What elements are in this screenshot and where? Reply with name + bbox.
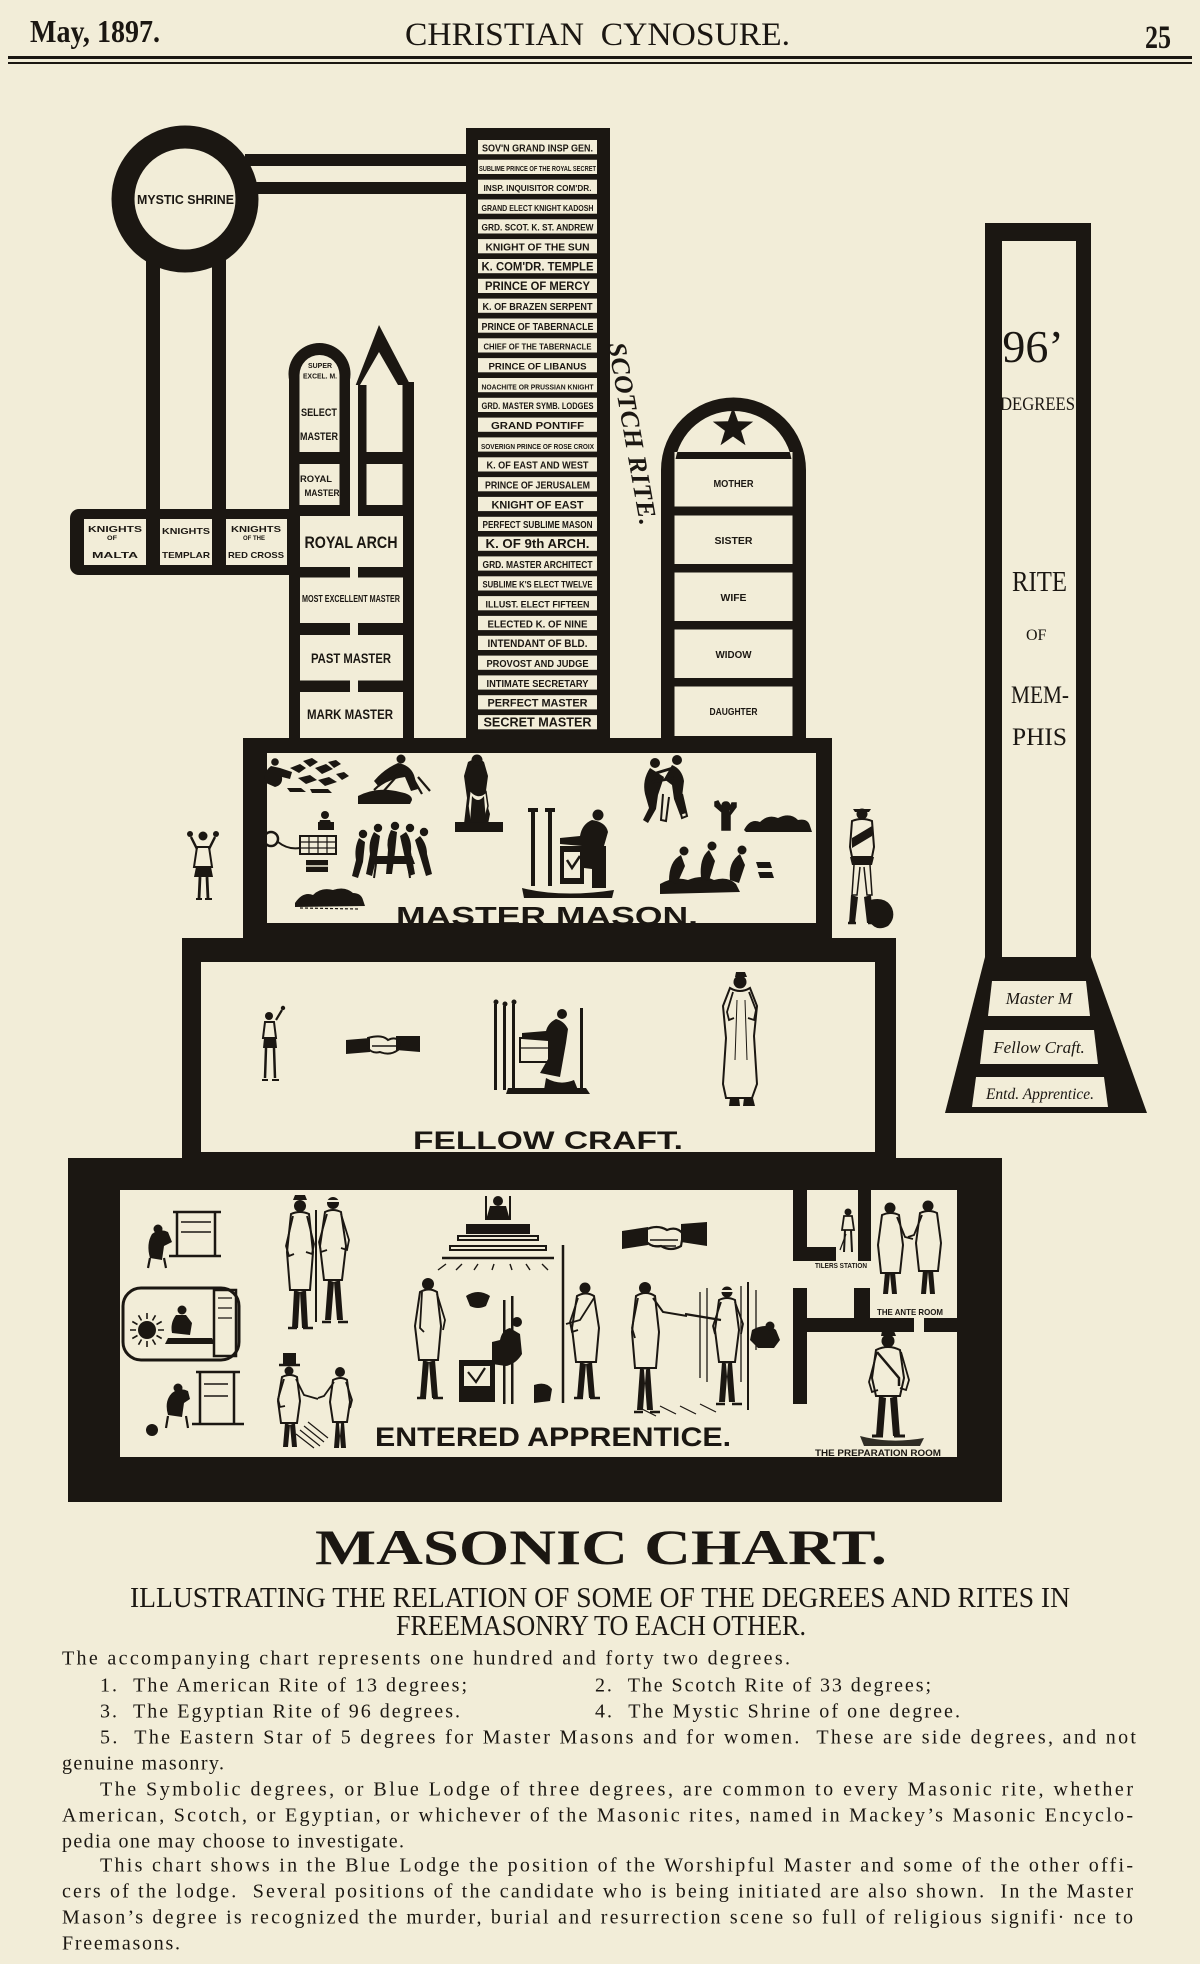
svg-text:This chart shows in the Blue L: This chart shows in the Blue Lodge the p…: [100, 1855, 1133, 1877]
svg-text:CHRISTIAN CYNOSURE.: CHRISTIAN CYNOSURE.: [405, 17, 790, 53]
svg-text:THE PREPARATION ROOM: THE PREPARATION ROOM: [815, 1448, 941, 1459]
svg-text:PRINCE OF JERUSALEM: PRINCE OF JERUSALEM: [485, 481, 590, 492]
svg-text:ROYAL ARCH: ROYAL ARCH: [305, 534, 398, 552]
svg-text:FREEMASONRY TO EACH OTHER.: FREEMASONRY TO EACH OTHER.: [396, 1611, 806, 1642]
svg-text:PAST MASTER: PAST MASTER: [311, 651, 391, 666]
svg-text:PERFECT MASTER: PERFECT MASTER: [488, 698, 588, 710]
svg-text:K. COM'DR. TEMPLE: K. COM'DR. TEMPLE: [482, 259, 594, 273]
svg-text:PRINCE OF MERCY: PRINCE OF MERCY: [485, 279, 590, 293]
svg-text:SECRET MASTER: SECRET MASTER: [484, 716, 592, 730]
svg-text:MASTER MASON.: MASTER MASON.: [396, 901, 698, 931]
svg-text:OF THE: OF THE: [243, 536, 265, 542]
svg-text:GRAND ELECT KNIGHT KADOSH: GRAND ELECT KNIGHT KADOSH: [482, 204, 594, 213]
svg-text:INSP. INQUISITOR COM'DR.: INSP. INQUISITOR COM'DR.: [484, 183, 592, 193]
svg-text:KNIGHT OF EAST: KNIGHT OF EAST: [492, 499, 584, 511]
svg-text:SOVERIGN PRINCE OF ROSE CROIX: SOVERIGN PRINCE OF ROSE CROIX: [481, 444, 594, 451]
svg-text:PRINCE OF TABERNACLE: PRINCE OF TABERNACLE: [482, 322, 594, 333]
svg-text:ILLUST. ELECT FIFTEEN: ILLUST. ELECT FIFTEEN: [486, 600, 590, 611]
svg-text:American, Scotch, or Egyptian,: American, Scotch, or Egyptian, or whiche…: [62, 1805, 1133, 1827]
svg-text:Fellow Craft.: Fellow Craft.: [992, 1038, 1085, 1057]
svg-text:SCOTCH RITE.: SCOTCH RITE.: [602, 340, 663, 527]
svg-text:ENTERED APPRENTICE.: ENTERED APPRENTICE.: [375, 1422, 731, 1452]
svg-text:MASONIC CHART.: MASONIC CHART.: [315, 1519, 887, 1575]
svg-text:OF: OF: [1026, 627, 1047, 644]
svg-text:pedia one may choose to invest: pedia one may choose to investigate.: [62, 1831, 404, 1853]
svg-text:SUBLIME PRINCE OF THE ROYAL SE: SUBLIME PRINCE OF THE ROYAL SECRET: [479, 166, 597, 173]
svg-text:NOACHITE OR PRUSSIAN KNIGHT: NOACHITE OR PRUSSIAN KNIGHT: [482, 384, 595, 391]
svg-text:RED CROSS: RED CROSS: [228, 550, 284, 560]
svg-text:ELECTED K. OF NINE: ELECTED K. OF NINE: [488, 618, 588, 630]
svg-text:MASTER: MASTER: [305, 488, 340, 499]
svg-text:The Symbolic degrees, or Blue: The Symbolic degrees, or Blue Lodge of t…: [100, 1779, 1133, 1801]
svg-text:INTENDANT OF BLD.: INTENDANT OF BLD.: [488, 638, 588, 650]
svg-text:KNIGHTS: KNIGHTS: [162, 526, 210, 536]
svg-text:KNIGHTS: KNIGHTS: [231, 524, 281, 534]
svg-text:May, 1897.: May, 1897.: [30, 13, 160, 49]
svg-text:MALTA: MALTA: [92, 550, 138, 560]
svg-text:DAUGHTER: DAUGHTER: [710, 707, 759, 718]
svg-text:WIFE: WIFE: [721, 593, 747, 604]
svg-text:Mason’s degree is recognized t: Mason’s degree is recognized the murder,…: [62, 1907, 1133, 1929]
svg-text:MEM-: MEM-: [1011, 682, 1069, 709]
svg-text:THE ANTE ROOM: THE ANTE ROOM: [877, 1307, 943, 1317]
svg-text:PRINCE OF LIBANUS: PRINCE OF LIBANUS: [489, 362, 587, 373]
svg-text:SUBLIME K'S ELECT TWELVE: SUBLIME K'S ELECT TWELVE: [483, 580, 593, 590]
svg-text:3. The Egyptian Rite of 96 de: 3. The Egyptian Rite of 96 degrees.: [100, 1701, 460, 1723]
svg-text:96’: 96’: [1002, 321, 1063, 372]
svg-text:2. The Scotch Rite of 33 degr: 2. The Scotch Rite of 33 degrees;: [595, 1675, 931, 1697]
svg-text:K. OF 9th ARCH.: K. OF 9th ARCH.: [486, 537, 590, 551]
svg-text:MOTHER: MOTHER: [714, 479, 755, 490]
svg-text:GRAND PONTIFF: GRAND PONTIFF: [491, 421, 584, 432]
svg-text:5. The Eastern Star of 5 degr: 5. The Eastern Star of 5 degrees for Mas…: [100, 1727, 1136, 1749]
svg-text:cers of the lodge. Several po: cers of the lodge. Several positions of …: [62, 1881, 1133, 1903]
svg-text:1. The American Rite of 13 de: 1. The American Rite of 13 degrees;: [100, 1675, 467, 1697]
svg-text:Entd. Apprentice.: Entd. Apprentice.: [985, 1086, 1094, 1103]
svg-text:SELECT: SELECT: [301, 407, 337, 419]
svg-text:Master M: Master M: [1005, 989, 1073, 1008]
svg-text:25: 25: [1145, 20, 1171, 56]
svg-text:The accompanying chart represe: The accompanying chart represents one hu…: [62, 1648, 790, 1670]
svg-text:SOV'N GRAND INSP GEN.: SOV'N GRAND INSP GEN.: [482, 142, 593, 154]
svg-text:SISTER: SISTER: [715, 536, 754, 547]
svg-text:ILLUSTRATING THE RELATION OF S: ILLUSTRATING THE RELATION OF SOME OF THE…: [130, 1583, 1070, 1614]
svg-text:4. The Mystic Shrine of one d: 4. The Mystic Shrine of one degree.: [595, 1701, 960, 1723]
svg-text:GRD. MASTER ARCHITECT: GRD. MASTER ARCHITECT: [483, 560, 593, 571]
svg-text:GRD. SCOT. K. ST. ANDREW: GRD. SCOT. K. ST. ANDREW: [482, 223, 594, 233]
svg-text:genuine masonry.: genuine masonry.: [62, 1753, 224, 1775]
svg-text:MARK MASTER: MARK MASTER: [307, 707, 393, 722]
svg-text:KNIGHT OF THE SUN: KNIGHT OF THE SUN: [486, 242, 590, 254]
svg-text:WIDOW: WIDOW: [716, 650, 753, 661]
svg-text:TILERS STATION: TILERS STATION: [815, 1263, 867, 1270]
svg-text:CHIEF OF THE TABERNACLE: CHIEF OF THE TABERNACLE: [484, 342, 592, 352]
svg-text:OF: OF: [107, 536, 117, 542]
svg-text:PROVOST AND JUDGE: PROVOST AND JUDGE: [487, 658, 589, 670]
svg-text:SUPER: SUPER: [308, 363, 332, 370]
svg-text:MOST EXCELLENT MASTER: MOST EXCELLENT MASTER: [302, 593, 400, 605]
svg-text:PHIS: PHIS: [1012, 724, 1067, 751]
svg-text:K. OF BRAZEN SERPENT: K. OF BRAZEN SERPENT: [483, 302, 594, 313]
svg-text:RITE: RITE: [1012, 567, 1067, 598]
svg-text:DEGREES: DEGREES: [1000, 394, 1075, 415]
svg-text:MYSTIC SHRINE: MYSTIC SHRINE: [137, 193, 234, 207]
svg-text:PERFECT SUBLIME MASON: PERFECT SUBLIME MASON: [483, 520, 593, 531]
svg-text:TEMPLAR: TEMPLAR: [162, 550, 210, 560]
svg-text:EXCEL. M.: EXCEL. M.: [303, 372, 337, 381]
svg-text:KNIGHTS: KNIGHTS: [88, 524, 142, 534]
svg-text:INTIMATE SECRETARY: INTIMATE SECRETARY: [487, 679, 589, 690]
svg-text:FELLOW CRAFT.: FELLOW CRAFT.: [413, 1127, 683, 1155]
svg-text:ROYAL: ROYAL: [300, 474, 332, 485]
svg-text:MASTER: MASTER: [300, 431, 338, 443]
svg-text:Freemasons.: Freemasons.: [62, 1933, 180, 1955]
svg-text:K. OF EAST AND WEST: K. OF EAST AND WEST: [487, 460, 590, 472]
svg-text:GRD. MASTER SYMB. LODGES: GRD. MASTER SYMB. LODGES: [482, 401, 594, 411]
